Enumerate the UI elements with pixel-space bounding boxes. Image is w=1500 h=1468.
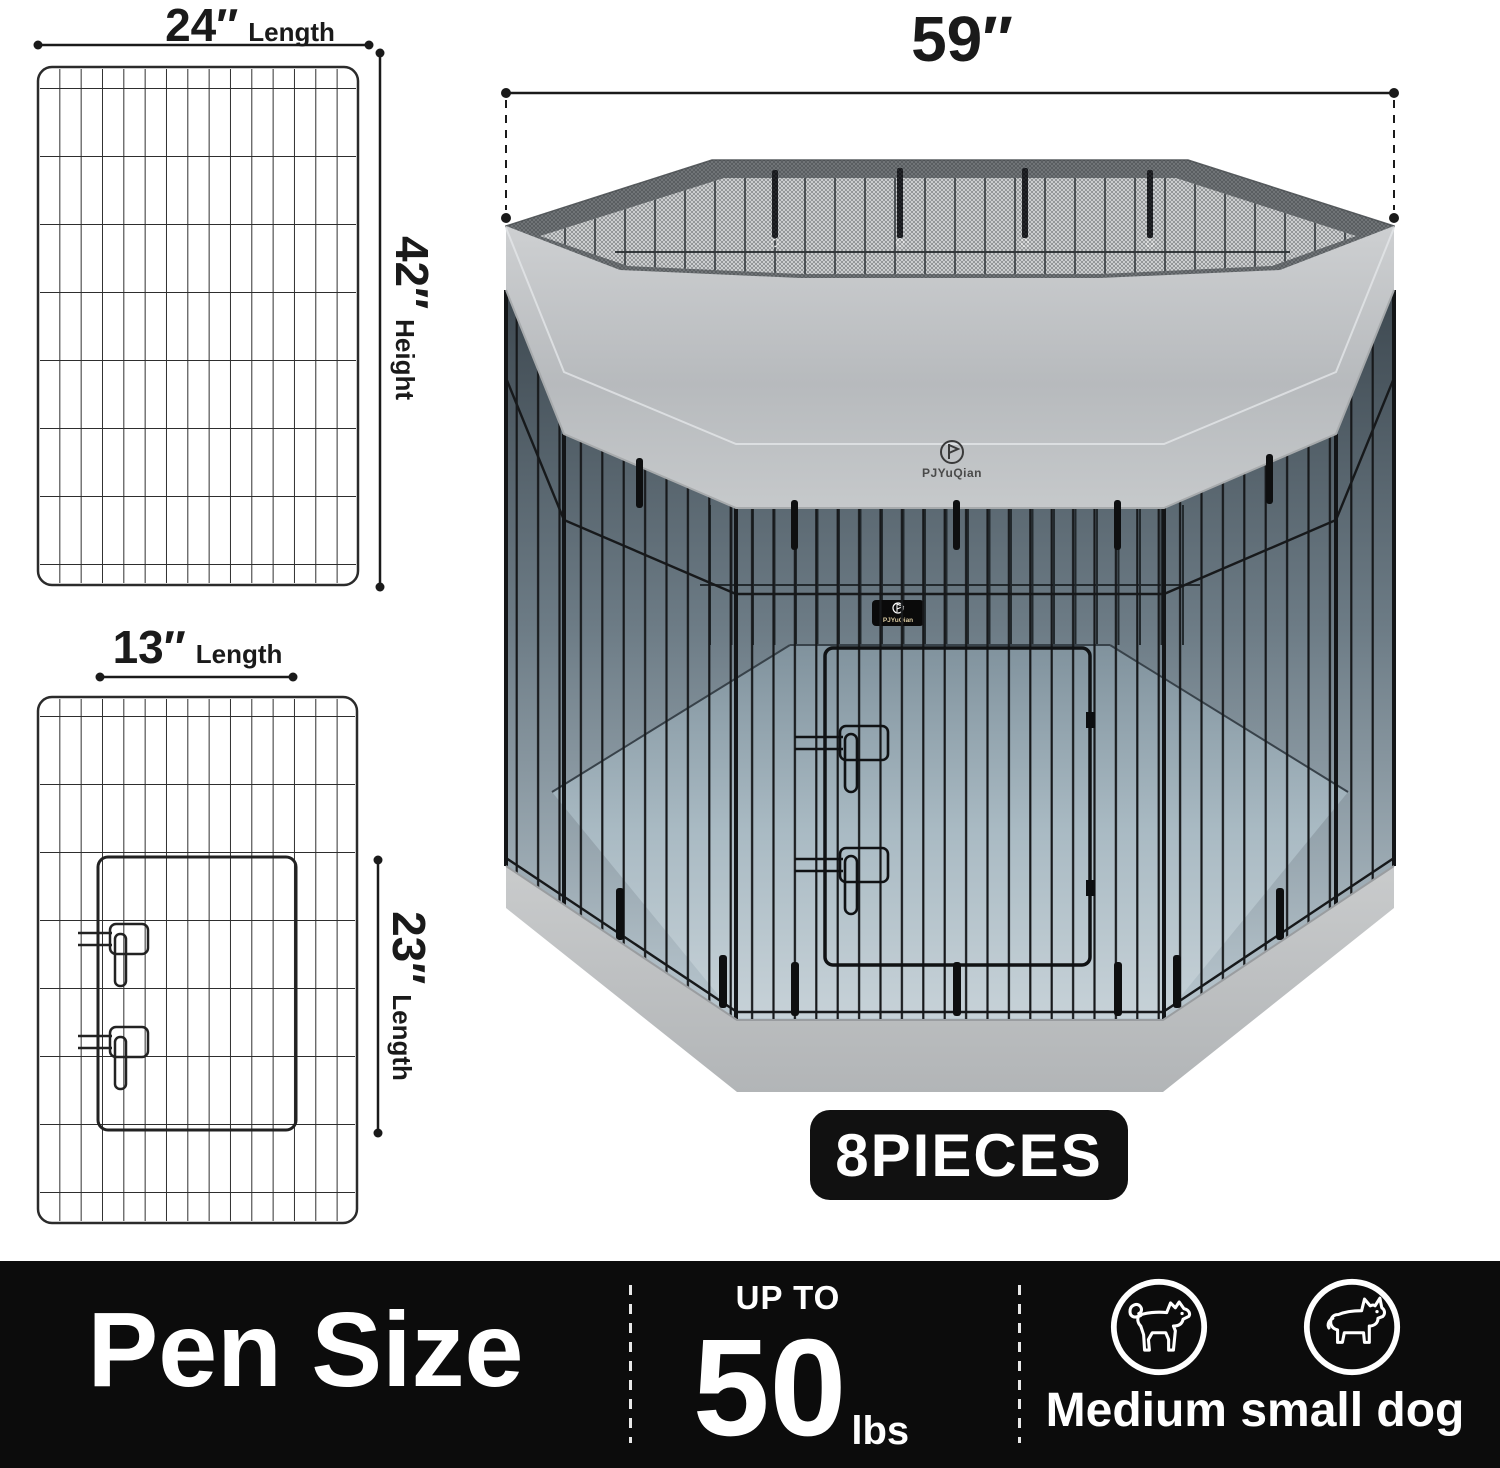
large-panel-diagram	[34, 41, 385, 592]
weight-value: 50	[693, 1319, 847, 1457]
pen-size-title: Pen Size	[48, 1297, 563, 1403]
large-panel-length-label: 24″ Length	[140, 0, 360, 52]
footer-divider-2	[1018, 1285, 1021, 1443]
door-panel-height-label: 23″ Length	[382, 911, 436, 1081]
footer-bar: Pen Size UP TO 50 lbs	[0, 1261, 1500, 1468]
line-art: PJYuQian	[0, 0, 1500, 1468]
small-dog-icon	[1302, 1277, 1402, 1377]
weight-limit-block: UP TO 50 lbs	[655, 1279, 947, 1457]
product-infographic: PJYuQian	[0, 0, 1500, 1468]
weight-unit: lbs	[851, 1411, 909, 1451]
dog-size-label: Medium small dog	[1030, 1387, 1480, 1435]
large-panel-height-dimension	[376, 49, 385, 592]
pen-illustration: PJYuQian	[501, 88, 1399, 1092]
pieces-badge: 8PIECES	[810, 1110, 1128, 1200]
door-panel-diagram	[38, 673, 383, 1224]
medium-dog-icon	[1109, 1277, 1209, 1377]
large-panel-height-label: 42″ Height	[385, 236, 439, 400]
dog-size-block: Medium small dog	[1030, 1277, 1480, 1435]
footer-divider-1	[629, 1285, 632, 1443]
pen-width-label: 59″	[812, 2, 1112, 76]
cover-brand-text: PJYuQian	[922, 466, 982, 480]
door-panel-length-label: 13″ Length	[100, 620, 295, 674]
